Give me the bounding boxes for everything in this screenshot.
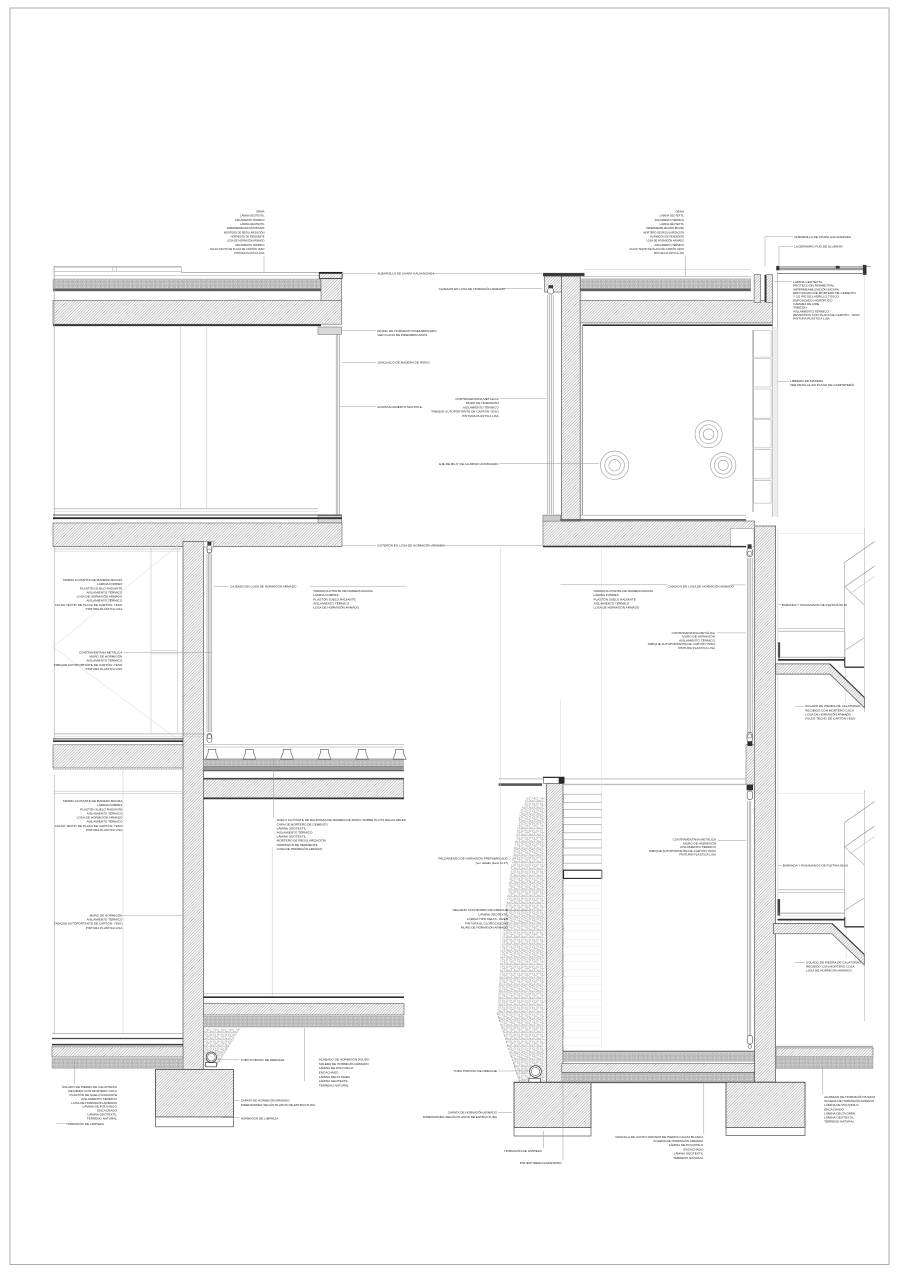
- svg-text:ACRISTALAMIENTO MÚLTIPLE: ACRISTALAMIENTO MÚLTIPLE: [377, 405, 422, 409]
- svg-text:CAJEADO EN LOSA DE HORMIGÓN AR: CAJEADO EN LOSA DE HORMIGÓN ARMADO: [439, 286, 506, 291]
- svg-text:POLIESTIRENO EXPANDIDO: POLIESTIRENO EXPANDIDO: [520, 1161, 562, 1165]
- svg-text:HORMIGÓN DE LIMPIEZA: HORMIGÓN DE LIMPIEZA: [241, 1116, 279, 1121]
- svg-text:BARANDA Y PASAMANOS DE PLETINA: BARANDA Y PASAMANOS DE PLETINA 80.10: [782, 603, 847, 607]
- svg-text:TUBO POROSO DE DRENAJE: TUBO POROSO DE DRENAJE: [241, 1058, 284, 1062]
- svg-text:BARANDA Y PASAMANOS DE PLETINA: BARANDA Y PASAMANOS DE PLETINA 80.10: [783, 864, 848, 868]
- svg-text:GOTERÓN EN LOSA DE HORMIGÓN AR: GOTERÓN EN LOSA DE HORMIGÓN ARMADO: [377, 542, 445, 547]
- svg-text:ALBARDILLA DE CHAPA GALVANIZAD: ALBARDILLA DE CHAPA GALVANIZADA: [794, 235, 852, 239]
- svg-text:JUNQUILLO DE MADERA DE IROKO: JUNQUILLO DE MADERA DE IROKO: [377, 361, 430, 365]
- svg-text:ALBARDILLA DE CHAPA GALVANIZAD: ALBARDILLA DE CHAPA GALVANIZADA: [377, 272, 435, 276]
- svg-text:HORMIGÓN DE LIMPIEZA: HORMIGÓN DE LIMPIEZA: [67, 1121, 105, 1126]
- svg-text:CAJEADO EN LOSA DE HORMIGÓN AR: CAJEADO EN LOSA DE HORMIGÓN ARMADO: [668, 584, 735, 589]
- svg-text:LUCERNARIO FIJO DE ALUMINIO: LUCERNARIO FIJO DE ALUMINIO: [794, 245, 843, 249]
- svg-text:EJE DE BUJY DE ALUMINIO ANODIZ: EJE DE BUJY DE ALUMINIO ANODIZADO: [439, 462, 499, 466]
- svg-text:HORMIGÓN DE LIMPIEZA: HORMIGÓN DE LIMPIEZA: [504, 1148, 542, 1153]
- svg-text:CAJEADO EN LOSA DE HORMIGÓN AR: CAJEADO EN LOSA DE HORMIGÓN ARMADO: [230, 584, 297, 589]
- svg-text:TUBO POROSO DE DRENAJE: TUBO POROSO DE DRENAJE: [454, 1069, 498, 1073]
